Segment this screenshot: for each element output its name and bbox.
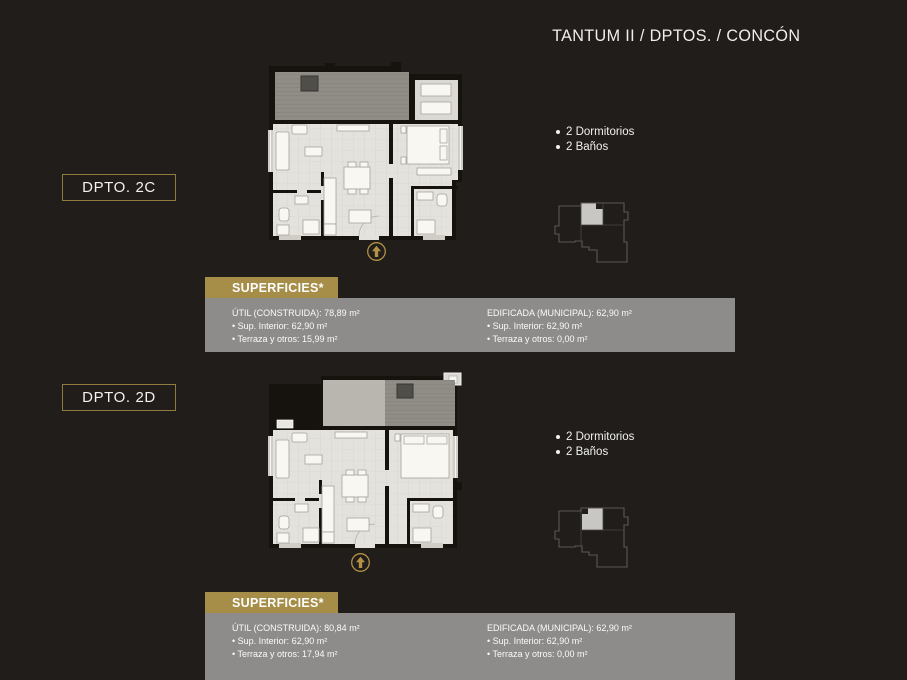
bullet-icon xyxy=(556,435,560,439)
feature-text: 2 Baños xyxy=(566,141,608,153)
entry-arrow-icon xyxy=(350,552,371,573)
feature-list-2d: 2 Dormitorios 2 Baños xyxy=(556,429,634,459)
edificada-title: EDIFICADA (MUNICIPAL): 62,90 m² xyxy=(487,622,632,635)
edificada-item: Terraza y otros: 0,00 m² xyxy=(487,648,632,661)
entry-arrow-icon xyxy=(366,241,387,262)
edificada-item: Sup. Interior: 62,90 m² xyxy=(487,635,632,648)
superficies-header-2d: SUPERFICIES* xyxy=(205,592,338,613)
dpto-2d-label: DPTO. 2D xyxy=(62,384,176,411)
superficies-header-text: SUPERFICIES* xyxy=(232,281,324,295)
bullet-icon xyxy=(556,130,560,134)
floor-plan-2c-image xyxy=(265,62,465,245)
brochure-page: TANTUM II / DPTOS. / CONCÓN DPTO. 2C xyxy=(0,0,907,680)
unit-location-map-2d xyxy=(545,495,645,580)
util-column: ÚTIL (CONSTRUIDA): 78,89 m² Sup. Interio… xyxy=(232,307,487,352)
dpto-2c-label-text: DPTO. 2C xyxy=(82,179,156,196)
edificada-column: EDIFICADA (MUNICIPAL): 62,90 m² Sup. Int… xyxy=(487,622,632,680)
feature-item: 2 Dormitorios xyxy=(556,429,634,444)
util-item: Sup. Interior: 62,90 m² xyxy=(232,320,487,333)
edificada-item: Terraza y otros: 0,00 m² xyxy=(487,333,632,346)
feature-item: 2 Baños xyxy=(556,139,634,154)
page-title: TANTUM II / DPTOS. / CONCÓN xyxy=(552,26,800,46)
feature-item: 2 Baños xyxy=(556,444,634,459)
superficies-header-2c: SUPERFICIES* xyxy=(205,277,338,298)
edificada-item: Sup. Interior: 62,90 m² xyxy=(487,320,632,333)
util-item: Terraza y otros: 17,94 m² xyxy=(232,648,487,661)
feature-text: 2 Dormitorios xyxy=(566,126,634,138)
superficies-panel-2c: ÚTIL (CONSTRUIDA): 78,89 m² Sup. Interio… xyxy=(205,298,735,352)
dpto-2d-label-text: DPTO. 2D xyxy=(82,389,156,406)
dpto-2c-label: DPTO. 2C xyxy=(62,174,176,201)
util-item: Terraza y otros: 15,99 m² xyxy=(232,333,487,346)
feature-text: 2 Dormitorios xyxy=(566,431,634,443)
feature-item: 2 Dormitorios xyxy=(556,124,634,139)
bullet-icon xyxy=(556,450,560,454)
floor-plan-2d-image xyxy=(265,372,465,552)
feature-text: 2 Baños xyxy=(566,446,608,458)
feature-list-2c: 2 Dormitorios 2 Baños xyxy=(556,124,634,154)
util-title: ÚTIL (CONSTRUIDA): 80,84 m² xyxy=(232,622,487,635)
edificada-title: EDIFICADA (MUNICIPAL): 62,90 m² xyxy=(487,307,632,320)
bullet-icon xyxy=(556,145,560,149)
superficies-header-text: SUPERFICIES* xyxy=(232,596,324,610)
util-column: ÚTIL (CONSTRUIDA): 80,84 m² Sup. Interio… xyxy=(232,622,487,680)
unit-location-map-2c xyxy=(545,190,645,275)
util-title: ÚTIL (CONSTRUIDA): 78,89 m² xyxy=(232,307,487,320)
util-item: Sup. Interior: 62,90 m² xyxy=(232,635,487,648)
edificada-column: EDIFICADA (MUNICIPAL): 62,90 m² Sup. Int… xyxy=(487,307,632,352)
superficies-panel-2d: ÚTIL (CONSTRUIDA): 80,84 m² Sup. Interio… xyxy=(205,613,735,680)
